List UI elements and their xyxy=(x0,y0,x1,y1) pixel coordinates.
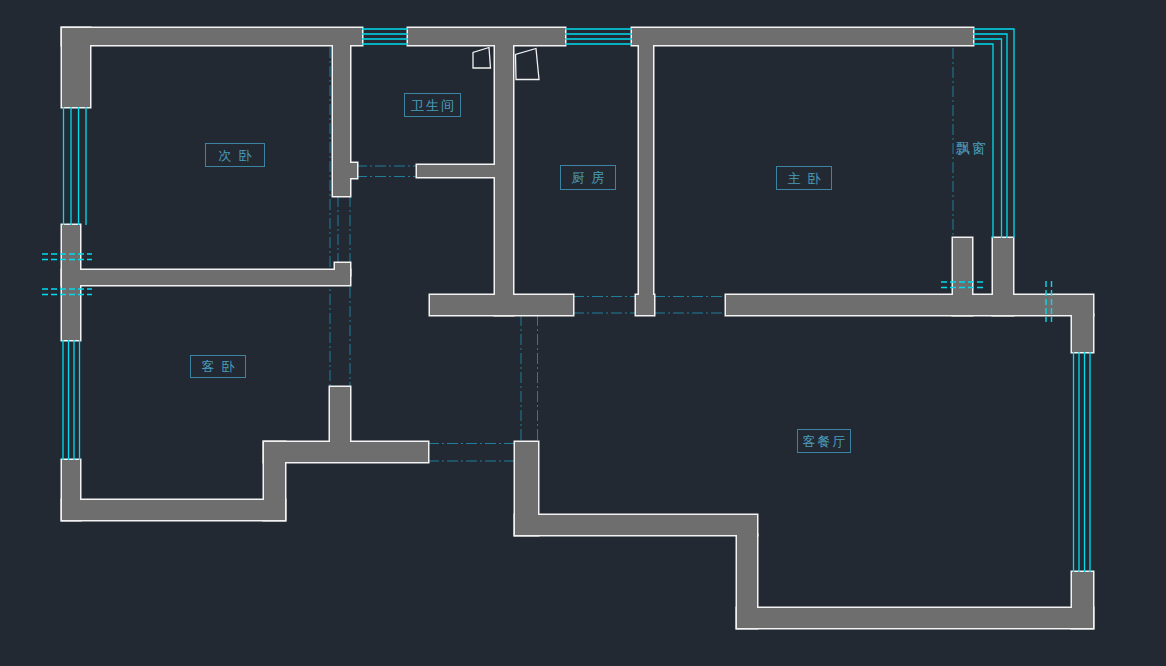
window-top-kitchen xyxy=(565,29,632,44)
floor-plan-drawing xyxy=(0,0,1166,666)
casement-leaf-icon-left xyxy=(473,48,491,69)
walls-layer xyxy=(62,28,1093,628)
annotation-bay-window[interactable]: 飘窗 xyxy=(956,141,988,155)
room-label-guest-bedroom[interactable]: 客卧 xyxy=(190,355,246,378)
centerline-kitchen-door xyxy=(573,297,636,314)
window-living-right xyxy=(1074,352,1091,572)
bay-window-glass xyxy=(973,29,1014,238)
room-label-secondary-bedroom[interactable]: 次卧 xyxy=(205,143,265,167)
centerline-bathroom-door xyxy=(356,166,417,177)
window-left-upper xyxy=(64,107,87,225)
window-top-left xyxy=(362,29,408,44)
centerline-corridor-opening xyxy=(521,315,538,442)
room-label-bathroom[interactable]: 卫生间 xyxy=(404,93,461,117)
room-label-living-dining[interactable]: 客餐厅 xyxy=(797,429,851,453)
casement-leaf-icon-right xyxy=(516,49,540,80)
centerline-master-door xyxy=(654,297,726,314)
room-label-kitchen[interactable]: 厨房 xyxy=(560,165,616,190)
centerline-living-door xyxy=(428,444,515,462)
window-left-lower xyxy=(63,340,80,460)
room-label-master-bedroom[interactable]: 主卧 xyxy=(776,166,832,190)
cad-viewport[interactable]: 次卧 卫生间 厨房 主卧 客卧 客餐厅 飘窗 xyxy=(0,0,1166,666)
